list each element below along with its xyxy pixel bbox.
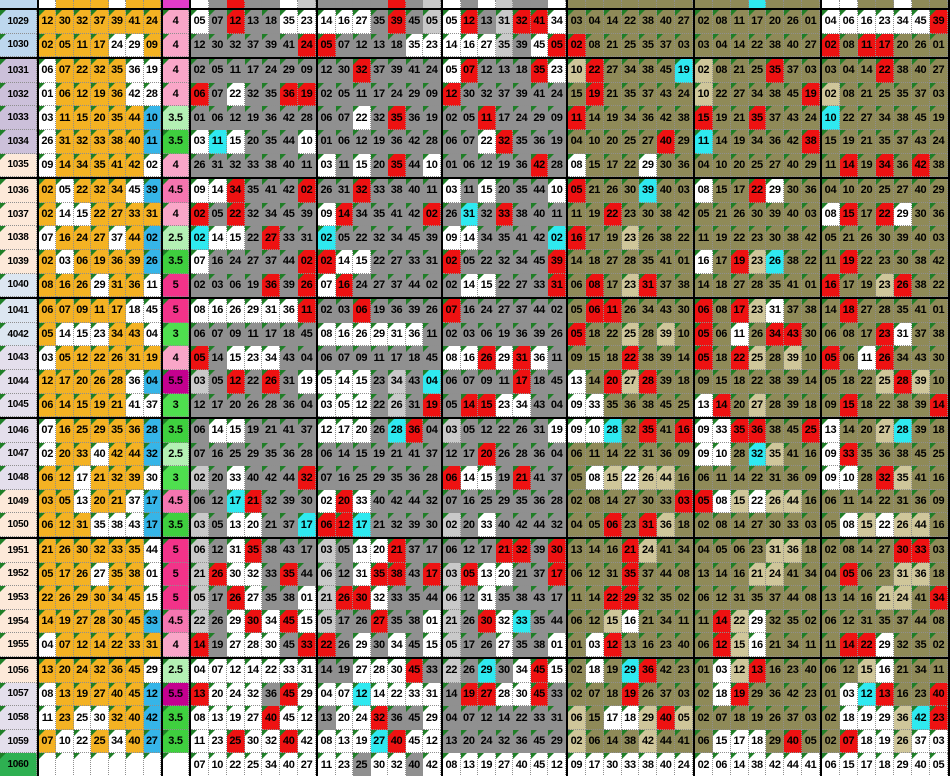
comparison-number-cell[interactable]: 38 <box>930 323 948 347</box>
comparison-number-cell[interactable]: 40 <box>657 130 675 154</box>
comparison-number-cell[interactable]: 41 <box>912 586 930 610</box>
comparison-number-cell[interactable]: 30 <box>784 179 802 203</box>
comparison-number-cell[interactable]: 03 <box>675 683 693 707</box>
comparison-number-cell[interactable]: 34 <box>912 659 930 683</box>
comparison-number-cell[interactable]: 36 <box>531 443 549 467</box>
comparison-number-cell[interactable]: 07 <box>191 753 209 776</box>
comparison-number-cell[interactable]: 14 <box>336 250 354 274</box>
comparison-number-cell[interactable]: 34 <box>622 106 640 130</box>
comparison-number-cell[interactable]: 31 <box>388 323 406 347</box>
comparison-number-cell[interactable]: 31 <box>548 274 566 298</box>
draw-number-cell[interactable]: 34 <box>109 730 126 754</box>
comparison-number-cell[interactable]: 22 <box>858 633 876 657</box>
comparison-number-cell[interactable]: 16 <box>336 10 354 34</box>
comparison-number-cell[interactable]: 29 <box>496 346 514 370</box>
comparison-number-cell[interactable]: 06 <box>695 633 713 657</box>
comparison-number-cell[interactable]: 39 <box>766 203 784 227</box>
comparison-number-cell[interactable]: 06 <box>443 539 461 563</box>
comparison-number-cell[interactable]: 30 <box>388 659 406 683</box>
comparison-number-cell[interactable]: 35 <box>749 586 767 610</box>
comparison-number-cell[interactable]: 27 <box>371 610 389 634</box>
comparison-number-cell[interactable]: 14 <box>245 659 263 683</box>
comparison-number-cell[interactable]: 11 <box>245 323 263 347</box>
comparison-number-cell[interactable]: 15 <box>478 274 496 298</box>
comparison-number-cell[interactable]: 26 <box>622 299 640 323</box>
comparison-number-cell[interactable]: 42 <box>766 753 784 776</box>
score-cell[interactable]: 3.5 <box>163 130 189 154</box>
comparison-number-cell[interactable]: 31 <box>461 203 479 227</box>
comparison-number-cell[interactable]: 35 <box>388 610 406 634</box>
comparison-number-cell[interactable]: 37 <box>657 274 675 298</box>
comparison-number-cell[interactable]: 12 <box>318 59 336 83</box>
comparison-number-cell[interactable]: 21 <box>876 586 894 610</box>
comparison-number-cell[interactable]: 08 <box>443 753 461 776</box>
comparison-number-cell[interactable]: 14 <box>461 466 479 490</box>
comparison-number-cell[interactable]: 17 <box>478 539 496 563</box>
draw-number-cell[interactable]: 04 <box>144 323 161 347</box>
row-id-cell[interactable]: 1955 <box>0 633 37 657</box>
draw-number-cell[interactable]: 26 <box>56 586 73 610</box>
row-id-cell[interactable]: 1057 <box>0 683 37 707</box>
comparison-number-cell[interactable]: 09 <box>695 419 713 443</box>
draw-number-cell[interactable]: 09 <box>144 34 161 58</box>
comparison-number-cell[interactable]: 17 <box>461 633 479 657</box>
comparison-number-cell[interactable]: 11 <box>353 83 371 107</box>
comparison-number-cell[interactable]: 14 <box>318 10 336 34</box>
comparison-number-cell[interactable]: 41 <box>657 250 675 274</box>
comparison-number-cell[interactable]: 03 <box>802 706 820 730</box>
comparison-number-cell[interactable]: 05 <box>840 563 858 587</box>
comparison-number-cell[interactable]: 32 <box>513 10 531 34</box>
comparison-number-cell[interactable]: 40 <box>784 34 802 58</box>
score-cell[interactable]: 4 <box>163 10 189 34</box>
comparison-number-cell[interactable]: 13 <box>209 706 227 730</box>
draw-number-cell[interactable]: 32 <box>74 10 91 34</box>
comparison-number-cell[interactable]: 06 <box>840 10 858 34</box>
comparison-number-cell[interactable]: 19 <box>840 250 858 274</box>
draw-number-cell[interactable]: 12 <box>74 83 91 107</box>
comparison-number-cell[interactable]: 32 <box>371 586 389 610</box>
comparison-number-cell[interactable]: 41 <box>802 753 820 776</box>
comparison-number-cell[interactable]: 17 <box>858 323 876 347</box>
comparison-number-cell[interactable]: 36 <box>894 154 912 178</box>
comparison-number-cell[interactable]: 16 <box>639 633 657 657</box>
comparison-number-cell[interactable]: 16 <box>894 683 912 707</box>
comparison-number-cell[interactable]: 10 <box>548 179 566 203</box>
comparison-number-cell[interactable]: 21 <box>639 610 657 634</box>
comparison-number-cell[interactable]: 41 <box>657 539 675 563</box>
draw-number-cell[interactable]: 20 <box>74 370 91 394</box>
comparison-number-cell[interactable]: 42 <box>406 203 424 227</box>
comparison-number-cell[interactable]: 36 <box>622 394 640 418</box>
draw-number-cell[interactable]: 07 <box>39 226 56 250</box>
comparison-number-cell[interactable]: 10 <box>298 130 316 154</box>
comparison-number-cell[interactable]: 19 <box>353 730 371 754</box>
comparison-number-cell[interactable]: 36 <box>531 346 549 370</box>
comparison-number-cell[interactable]: 39 <box>657 323 675 347</box>
comparison-number-cell[interactable]: 20 <box>858 419 876 443</box>
row-id-cell[interactable]: 1043 <box>0 346 37 370</box>
comparison-number-cell[interactable]: 12 <box>461 10 479 34</box>
comparison-number-cell[interactable]: 17 <box>604 706 622 730</box>
comparison-number-cell[interactable]: 20 <box>353 419 371 443</box>
comparison-number-cell[interactable]: 19 <box>548 419 566 443</box>
comparison-number-cell[interactable]: 24 <box>802 106 820 130</box>
comparison-number-cell[interactable]: 16 <box>461 490 479 514</box>
comparison-number-cell[interactable]: 06 <box>695 586 713 610</box>
comparison-number-cell[interactable]: 19 <box>675 59 693 83</box>
comparison-number-cell[interactable]: 23 <box>802 683 820 707</box>
score-cell[interactable]: 4 <box>163 34 189 58</box>
comparison-number-cell[interactable]: 14 <box>336 370 354 394</box>
comparison-number-cell[interactable]: 12 <box>586 563 604 587</box>
comparison-number-cell[interactable]: 14 <box>336 443 354 467</box>
comparison-number-cell[interactable]: 05 <box>568 466 586 490</box>
comparison-number-cell[interactable]: 06 <box>822 490 840 514</box>
comparison-number-cell[interactable]: 41 <box>657 419 675 443</box>
comparison-number-cell[interactable]: 12 <box>840 610 858 634</box>
comparison-number-cell[interactable]: 10 <box>713 443 731 467</box>
comparison-number-cell[interactable]: 23 <box>749 250 767 274</box>
comparison-number-cell[interactable]: 40 <box>496 513 514 537</box>
comparison-number-cell[interactable]: 20 <box>245 130 263 154</box>
comparison-number-cell[interactable]: 13 <box>461 753 479 776</box>
comparison-number-cell[interactable]: 03 <box>675 490 693 514</box>
comparison-number-cell[interactable]: 36 <box>262 683 280 707</box>
comparison-number-cell[interactable]: 25 <box>749 154 767 178</box>
comparison-number-cell[interactable]: 19 <box>298 83 316 107</box>
draw-number-cell[interactable]: 12 <box>56 466 73 490</box>
comparison-number-cell[interactable]: 35 <box>262 130 280 154</box>
comparison-number-cell[interactable]: 37 <box>245 34 263 58</box>
draw-number-cell[interactable]: 12 <box>144 683 161 707</box>
comparison-number-cell[interactable]: 16 <box>336 323 354 347</box>
comparison-number-cell[interactable]: 04 <box>548 443 566 467</box>
draw-number-cell[interactable]: 29 <box>144 659 161 683</box>
draw-number-cell[interactable]: 24 <box>144 10 161 34</box>
comparison-number-cell[interactable]: 40 <box>245 466 263 490</box>
comparison-number-cell[interactable]: 13 <box>191 683 209 707</box>
comparison-number-cell[interactable]: 37 <box>406 539 424 563</box>
comparison-number-cell[interactable]: 01 <box>822 683 840 707</box>
comparison-number-cell[interactable]: 05 <box>209 59 227 83</box>
comparison-number-cell[interactable]: 27 <box>371 730 389 754</box>
comparison-number-cell[interactable]: 04 <box>298 394 316 418</box>
comparison-number-cell[interactable]: 27 <box>731 274 749 298</box>
comparison-number-cell[interactable]: 24 <box>894 586 912 610</box>
comparison-number-cell[interactable]: 30 <box>912 203 930 227</box>
row-id-cell[interactable]: 1030 <box>0 34 37 58</box>
comparison-number-cell[interactable]: 25 <box>876 370 894 394</box>
comparison-number-cell[interactable]: 11 <box>548 346 566 370</box>
comparison-number-cell[interactable]: 23 <box>371 370 389 394</box>
comparison-number-cell[interactable]: 09 <box>568 346 586 370</box>
draw-number-cell[interactable]: 04 <box>39 633 56 657</box>
comparison-number-cell[interactable]: 35 <box>766 443 784 467</box>
comparison-number-cell[interactable]: 26 <box>423 299 441 323</box>
comparison-number-cell[interactable]: 44 <box>784 586 802 610</box>
comparison-number-cell[interactable]: 35 <box>784 610 802 634</box>
comparison-number-cell[interactable]: 09 <box>822 394 840 418</box>
comparison-number-cell[interactable]: 32 <box>371 706 389 730</box>
score-cell[interactable]: 4 <box>163 154 189 178</box>
draw-number-cell[interactable]: 30 <box>144 466 161 490</box>
comparison-number-cell[interactable]: 30 <box>766 513 784 537</box>
comparison-number-cell[interactable]: 23 <box>675 659 693 683</box>
comparison-number-cell[interactable]: 31 <box>858 610 876 634</box>
draw-number-cell[interactable]: 05 <box>56 346 73 370</box>
draw-number-cell[interactable]: 24 <box>109 34 126 58</box>
comparison-number-cell[interactable]: 21 <box>262 419 280 443</box>
comparison-number-cell[interactable]: 11 <box>731 10 749 34</box>
comparison-number-cell[interactable]: 28 <box>604 419 622 443</box>
comparison-number-cell[interactable]: 01 <box>802 10 820 34</box>
comparison-number-cell[interactable]: 39 <box>784 370 802 394</box>
draw-number-cell[interactable]: 06 <box>39 394 56 418</box>
comparison-number-cell[interactable]: 03 <box>209 274 227 298</box>
comparison-number-cell[interactable]: 41 <box>784 274 802 298</box>
comparison-number-cell[interactable]: 05 <box>443 59 461 83</box>
comparison-number-cell[interactable]: 30 <box>461 83 479 107</box>
comparison-number-cell[interactable]: 15 <box>548 659 566 683</box>
comparison-number-cell[interactable]: 02 <box>822 730 840 754</box>
comparison-number-cell[interactable]: 18 <box>930 419 948 443</box>
comparison-number-cell[interactable]: 31 <box>227 539 245 563</box>
comparison-number-cell[interactable]: 26 <box>894 513 912 537</box>
comparison-number-cell[interactable]: 12 <box>227 10 245 34</box>
comparison-number-cell[interactable]: 22 <box>731 610 749 634</box>
comparison-number-cell[interactable]: 45 <box>406 730 424 754</box>
comparison-number-cell[interactable]: 34 <box>766 323 784 347</box>
comparison-number-cell[interactable]: 11 <box>822 633 840 657</box>
comparison-number-cell[interactable]: 14 <box>731 466 749 490</box>
comparison-number-cell[interactable]: 19 <box>496 323 514 347</box>
comparison-number-cell[interactable]: 04 <box>318 683 336 707</box>
comparison-number-cell[interactable]: 16 <box>209 443 227 467</box>
comparison-number-cell[interactable]: 20 <box>461 513 479 537</box>
comparison-number-cell[interactable]: 10 <box>586 419 604 443</box>
comparison-number-cell[interactable]: 20 <box>766 10 784 34</box>
comparison-number-cell[interactable]: 45 <box>531 683 549 707</box>
comparison-number-cell[interactable]: 41 <box>531 10 549 34</box>
comparison-number-cell[interactable]: 43 <box>657 83 675 107</box>
comparison-number-cell[interactable]: 04 <box>822 179 840 203</box>
comparison-number-cell[interactable]: 19 <box>713 106 731 130</box>
comparison-number-cell[interactable]: 28 <box>423 130 441 154</box>
draw-number-cell[interactable]: 08 <box>39 683 56 707</box>
comparison-number-cell[interactable]: 09 <box>802 466 820 490</box>
comparison-number-cell[interactable]: 21 <box>858 130 876 154</box>
comparison-number-cell[interactable]: 42 <box>531 226 549 250</box>
comparison-number-cell[interactable]: 32 <box>353 179 371 203</box>
draw-number-cell[interactable]: 18 <box>126 299 143 323</box>
comparison-number-cell[interactable]: 26 <box>478 346 496 370</box>
comparison-number-cell[interactable]: 18 <box>586 323 604 347</box>
comparison-number-cell[interactable]: 42 <box>423 753 441 776</box>
comparison-number-cell[interactable]: 19 <box>840 130 858 154</box>
comparison-number-cell[interactable]: 22 <box>478 250 496 274</box>
comparison-number-cell[interactable]: 13 <box>227 513 245 537</box>
comparison-number-cell[interactable]: 15 <box>227 419 245 443</box>
comparison-number-cell[interactable]: 29 <box>766 730 784 754</box>
comparison-number-cell[interactable]: 25 <box>675 394 693 418</box>
row-id-cell[interactable]: 1035 <box>0 154 37 178</box>
comparison-number-cell[interactable]: 42 <box>802 226 820 250</box>
draw-number-cell[interactable]: 42 <box>109 443 126 467</box>
comparison-number-cell[interactable]: 36 <box>531 490 549 514</box>
comparison-number-cell[interactable]: 40 <box>406 753 424 776</box>
comparison-number-cell[interactable]: 02 <box>568 730 586 754</box>
comparison-number-cell[interactable]: 17 <box>423 539 441 563</box>
comparison-number-cell[interactable]: 19 <box>371 130 389 154</box>
comparison-number-cell[interactable]: 07 <box>209 83 227 107</box>
comparison-number-cell[interactable]: 27 <box>766 154 784 178</box>
comparison-number-cell[interactable]: 35 <box>622 83 640 107</box>
comparison-number-cell[interactable]: 19 <box>731 683 749 707</box>
comparison-number-cell[interactable]: 27 <box>604 59 622 83</box>
comparison-number-cell[interactable]: 33 <box>280 659 298 683</box>
comparison-number-cell[interactable]: 08 <box>191 299 209 323</box>
comparison-number-cell[interactable]: 13 <box>749 659 767 683</box>
comparison-number-cell[interactable]: 34 <box>262 753 280 776</box>
comparison-number-cell[interactable]: 43 <box>912 130 930 154</box>
comparison-number-cell[interactable]: 17 <box>731 179 749 203</box>
comparison-number-cell[interactable]: 01 <box>318 130 336 154</box>
comparison-number-cell[interactable]: 03 <box>802 59 820 83</box>
draw-number-cell[interactable]: 33 <box>144 610 161 634</box>
comparison-number-cell[interactable]: 41 <box>406 59 424 83</box>
comparison-number-cell[interactable]: 08 <box>840 323 858 347</box>
score-cell[interactable]: 3 <box>163 323 189 347</box>
comparison-number-cell[interactable]: 17 <box>496 106 514 130</box>
comparison-number-cell[interactable]: 22 <box>749 34 767 58</box>
comparison-number-cell[interactable]: 26 <box>731 203 749 227</box>
comparison-number-cell[interactable]: 24 <box>353 274 371 298</box>
comparison-number-cell[interactable]: 33 <box>353 490 371 514</box>
comparison-number-cell[interactable]: 17 <box>548 563 566 587</box>
comparison-number-cell[interactable]: 28 <box>894 370 912 394</box>
comparison-number-cell[interactable]: 27 <box>245 586 263 610</box>
comparison-number-cell[interactable]: 37 <box>639 563 657 587</box>
comparison-number-cell[interactable]: 29 <box>930 179 948 203</box>
score-cell[interactable]: 4 <box>163 83 189 107</box>
comparison-number-cell[interactable]: 45 <box>548 370 566 394</box>
comparison-number-cell[interactable]: 18 <box>388 34 406 58</box>
comparison-number-cell[interactable]: 04 <box>695 154 713 178</box>
comparison-number-cell[interactable]: 26 <box>461 659 479 683</box>
draw-number-cell[interactable]: 35 <box>109 419 126 443</box>
comparison-number-cell[interactable]: 38 <box>639 346 657 370</box>
draw-number-cell[interactable]: 05 <box>56 179 73 203</box>
comparison-number-cell[interactable]: 02 <box>695 683 713 707</box>
draw-number-cell[interactable]: 07 <box>56 59 73 83</box>
comparison-number-cell[interactable]: 30 <box>657 154 675 178</box>
comparison-number-cell[interactable]: 23 <box>876 10 894 34</box>
draw-number-cell[interactable]: 21 <box>109 394 126 418</box>
row-id-cell[interactable]: 4042 <box>0 323 37 347</box>
comparison-number-cell[interactable]: 17 <box>604 274 622 298</box>
comparison-number-cell[interactable]: 22 <box>731 226 749 250</box>
draw-number-cell[interactable]: 22 <box>39 586 56 610</box>
draw-number-cell[interactable]: 11 <box>39 706 56 730</box>
comparison-number-cell[interactable]: 03 <box>675 179 693 203</box>
comparison-number-cell[interactable]: 45 <box>531 659 549 683</box>
row-id-cell[interactable]: 1034 <box>0 130 37 154</box>
comparison-number-cell[interactable]: 10 <box>822 106 840 130</box>
draw-number-cell[interactable]: 32 <box>91 179 108 203</box>
comparison-number-cell[interactable]: 27 <box>749 513 767 537</box>
comparison-number-cell[interactable]: 09 <box>822 466 840 490</box>
comparison-number-cell[interactable]: 22 <box>245 370 263 394</box>
comparison-number-cell[interactable]: 05 <box>191 10 209 34</box>
comparison-number-cell[interactable]: 20 <box>496 563 514 587</box>
comparison-number-cell[interactable]: 28 <box>262 394 280 418</box>
row-id-cell[interactable]: 1050 <box>0 513 37 537</box>
comparison-number-cell[interactable]: 18 <box>731 370 749 394</box>
draw-number-cell[interactable]: 28 <box>144 419 161 443</box>
comparison-number-cell[interactable]: 27 <box>245 706 263 730</box>
comparison-number-cell[interactable]: 06 <box>568 274 586 298</box>
draw-number-cell[interactable]: 26 <box>74 274 91 298</box>
comparison-number-cell[interactable]: 05 <box>443 10 461 34</box>
draw-number-cell[interactable]: 37 <box>109 226 126 250</box>
comparison-number-cell[interactable]: 30 <box>336 59 354 83</box>
comparison-number-cell[interactable]: 35 <box>513 130 531 154</box>
score-cell[interactable]: 2.5 <box>163 443 189 467</box>
draw-number-cell[interactable]: 32 <box>91 539 108 563</box>
comparison-number-cell[interactable]: 11 <box>191 730 209 754</box>
comparison-number-cell[interactable]: 30 <box>675 299 693 323</box>
comparison-number-cell[interactable]: 33 <box>586 394 604 418</box>
comparison-number-cell[interactable]: 37 <box>548 466 566 490</box>
draw-number-cell[interactable]: 13 <box>39 659 56 683</box>
comparison-number-cell[interactable]: 36 <box>657 513 675 537</box>
draw-number-cell[interactable]: 25 <box>74 419 91 443</box>
comparison-number-cell[interactable]: 28 <box>749 274 767 298</box>
draw-number-cell[interactable]: 45 <box>126 610 143 634</box>
comparison-number-cell[interactable]: 29 <box>478 659 496 683</box>
comparison-number-cell[interactable]: 39 <box>912 370 930 394</box>
comparison-number-cell[interactable]: 44 <box>406 274 424 298</box>
comparison-number-cell[interactable]: 05 <box>713 539 731 563</box>
comparison-number-cell[interactable]: 26 <box>245 394 263 418</box>
comparison-number-cell[interactable]: 21 <box>604 34 622 58</box>
draw-number-cell[interactable]: 16 <box>56 226 73 250</box>
comparison-number-cell[interactable]: 04 <box>840 59 858 83</box>
comparison-number-cell[interactable]: 05 <box>318 610 336 634</box>
comparison-number-cell[interactable]: 21 <box>766 633 784 657</box>
comparison-number-cell[interactable]: 02 <box>930 633 948 657</box>
score-cell[interactable]: 2.5 <box>163 659 189 683</box>
comparison-number-cell[interactable]: 05 <box>443 633 461 657</box>
draw-number-cell[interactable]: 45 <box>144 299 161 323</box>
comparison-number-cell[interactable]: 22 <box>858 250 876 274</box>
comparison-number-cell[interactable]: 34 <box>876 106 894 130</box>
draw-number-cell[interactable]: 12 <box>74 346 91 370</box>
comparison-number-cell[interactable]: 02 <box>423 274 441 298</box>
comparison-number-cell[interactable]: 37 <box>912 83 930 107</box>
comparison-number-cell[interactable]: 14 <box>713 394 731 418</box>
comparison-number-cell[interactable]: 40 <box>912 753 930 776</box>
comparison-number-cell[interactable]: 25 <box>353 466 371 490</box>
comparison-number-cell[interactable]: 14 <box>858 490 876 514</box>
comparison-number-cell[interactable]: 25 <box>876 83 894 107</box>
comparison-number-cell[interactable]: 05 <box>586 513 604 537</box>
comparison-number-cell[interactable]: 30 <box>639 203 657 227</box>
draw-number-cell[interactable]: 07 <box>39 730 56 754</box>
comparison-number-cell[interactable]: 15 <box>695 106 713 130</box>
comparison-number-cell[interactable]: 17 <box>298 539 316 563</box>
